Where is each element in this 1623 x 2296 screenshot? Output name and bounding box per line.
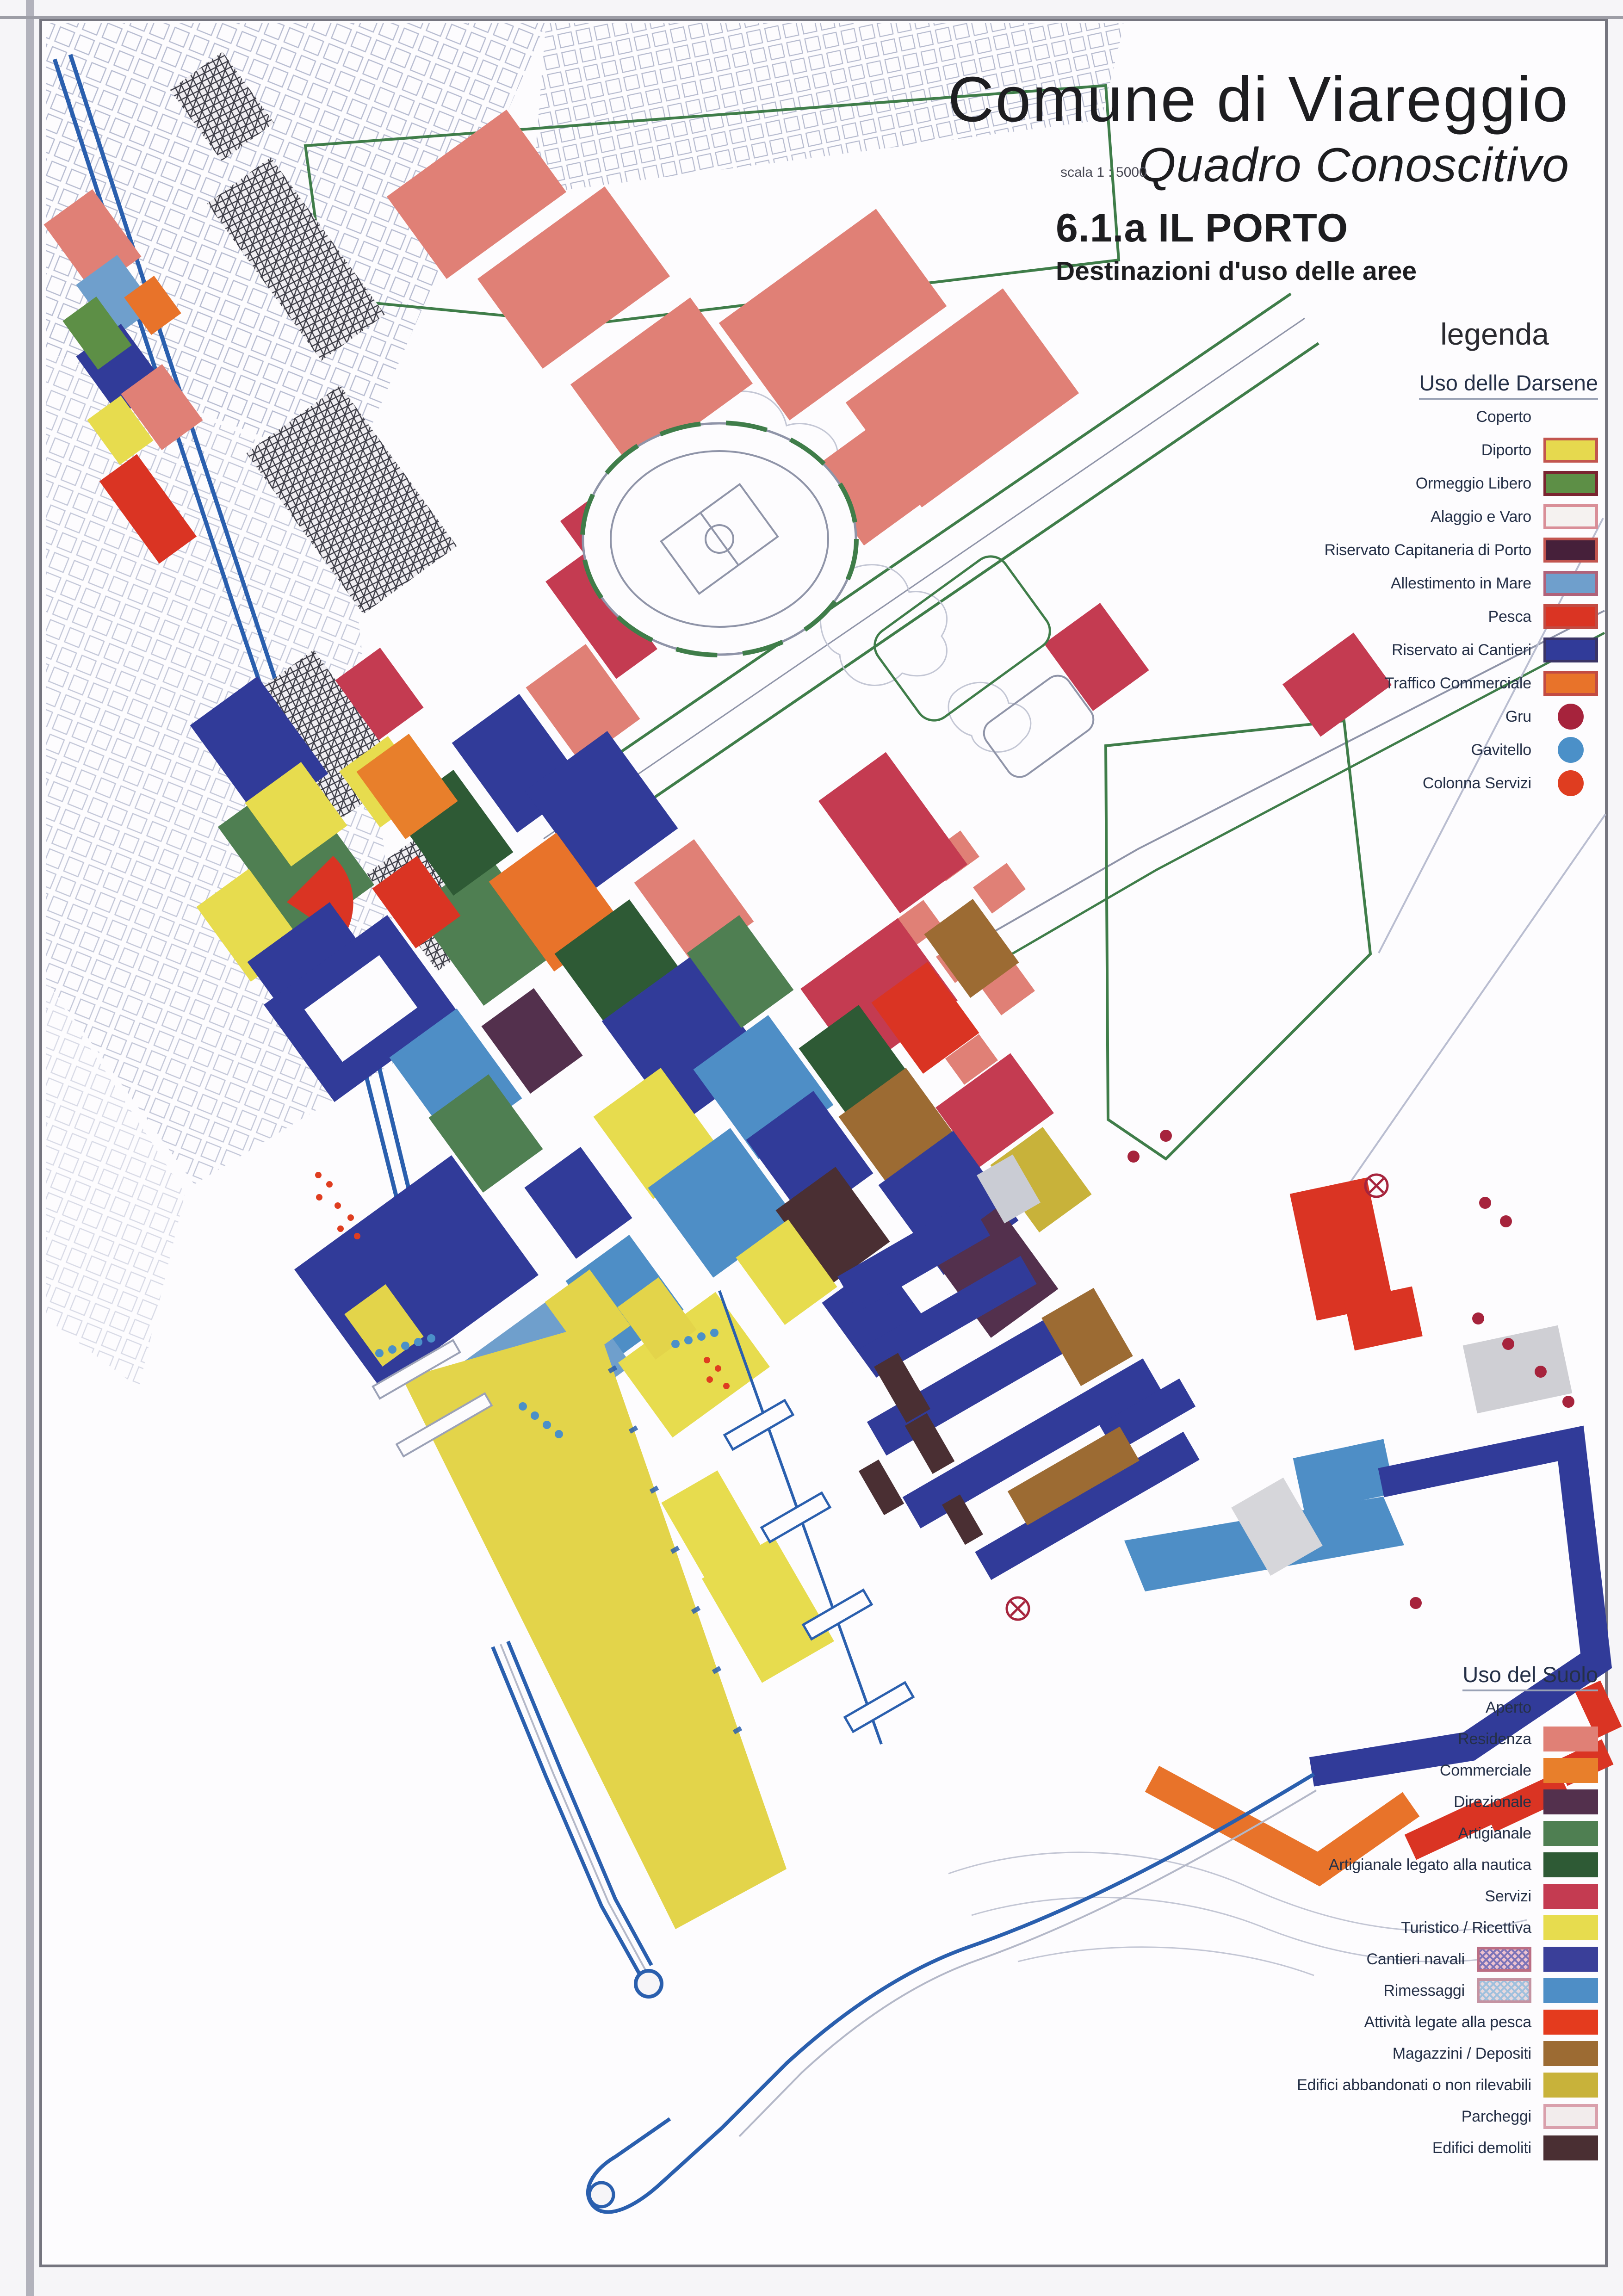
legend-item-label: Gavitello <box>1471 742 1531 758</box>
legend-item-label: Edifici abbandonati o non rilevabili <box>1297 2077 1531 2093</box>
legend-item-label: Riservato Capitaneria di Porto <box>1324 542 1531 558</box>
servizi-swatch <box>1543 1884 1598 1909</box>
edifici-demoliti-swatch <box>1543 2135 1598 2160</box>
allestimento-in-mare-swatch <box>1543 571 1598 596</box>
cantieri-navali-swatch <box>1543 1947 1598 1972</box>
legend-item-riservato-capitaneria: Riservato Capitaneria di Porto <box>904 533 1598 567</box>
legend-item-label: Rimessaggi <box>1383 1983 1465 1999</box>
legend-item-pesca: Pesca <box>904 600 1598 633</box>
legend-heading: legenda <box>1440 316 1549 352</box>
legend-item-ormeggio-libero: Ormeggio Libero <box>904 467 1598 500</box>
legend-item-gru: Gru <box>904 700 1598 733</box>
parcheggi-swatch <box>1543 2104 1598 2129</box>
alaggio-e-varo-swatch <box>1543 504 1598 529</box>
riservato-capitaneria-swatch <box>1543 538 1598 563</box>
legend-item-commerciale: Commerciale <box>904 1755 1598 1786</box>
legend-item-label: Pesca <box>1488 609 1532 625</box>
legend-item-label: Cantieri navali <box>1367 1951 1465 1968</box>
gru-marker-icon <box>1558 704 1584 730</box>
legend-item-diporto: Diporto <box>904 433 1598 467</box>
direzionale-swatch <box>1543 1789 1598 1814</box>
legend-item-gavitello: Gavitello <box>904 733 1598 767</box>
legend-item-alaggio-e-varo: Alaggio e Varo <box>904 500 1598 533</box>
map-code: 6.1.a IL PORTO <box>1056 205 1417 251</box>
attivita-pesca-swatch <box>1543 2010 1598 2035</box>
legend-item-traffico-commerciale: Traffico Commerciale <box>904 667 1598 700</box>
legend-item-label: Traffico Commerciale <box>1385 675 1531 692</box>
legend-darsene-title: Uso delle Darsene <box>904 370 1598 396</box>
legend-item-rimessaggi: Rimessaggi <box>904 1975 1598 2006</box>
legend-item-label: Diporto <box>1481 442 1531 458</box>
legend-item-label: Commerciale <box>1440 1763 1531 1779</box>
legend-item-label: Attività legate alla pesca <box>1364 2014 1531 2030</box>
legend-item-cantieri-navali: Cantieri navali <box>904 1943 1598 1975</box>
map-sheet: Comune di Viareggio Quadro Conoscitivo s… <box>0 0 1623 2296</box>
legend-item-parcheggi: Parcheggi <box>904 2101 1598 2132</box>
ormeggio-libero-swatch <box>1543 471 1598 496</box>
title-block: Comune di Viareggio Quadro Conoscitivo <box>948 68 1569 193</box>
page-subtitle: Quadro Conoscitivo <box>948 138 1569 193</box>
edifici-abbandonati-swatch <box>1543 2073 1598 2098</box>
map-subtitle: Destinazioni d'uso delle aree <box>1056 256 1417 286</box>
legend-item-magazzini-depositi: Magazzini / Depositi <box>904 2038 1598 2069</box>
rimessaggi-swatch <box>1543 1978 1598 2003</box>
legend-item-label: Coperto <box>1476 409 1531 425</box>
legend-item-label: Ormeggio Libero <box>1416 476 1531 492</box>
legend-item-label: Edifici demoliti <box>1432 2140 1531 2156</box>
legend-item-allestimento-in-mare: Allestimento in Mare <box>904 567 1598 600</box>
colonna-servizi-marker-icon <box>1558 770 1584 796</box>
legend-item-label: Magazzini / Depositi <box>1393 2046 1531 2062</box>
legend-item-coperto: Coperto <box>904 400 1598 433</box>
legend-item-label: Direzionale <box>1454 1794 1531 1810</box>
legend-item-label: Artigianale <box>1458 1826 1531 1842</box>
stadium <box>582 423 856 655</box>
legend-item-residenza: Residenza <box>904 1723 1598 1755</box>
map-code-block: 6.1.a IL PORTO Destinazioni d'uso delle … <box>1056 205 1417 286</box>
riservato-ai-cantieri-swatch <box>1543 637 1598 662</box>
legend-item-label: Alaggio e Varo <box>1431 509 1531 525</box>
page-title: Comune di Viareggio <box>948 68 1569 131</box>
legend-item-label: Aperto <box>1486 1700 1531 1716</box>
legend-item-edifici-abbandonati: Edifici abbandonati o non rilevabili <box>904 2069 1598 2101</box>
legend-item-artigianale: Artigianale <box>904 1818 1598 1849</box>
traffico-commerciale-swatch <box>1543 671 1598 696</box>
artigianale-nautica-swatch <box>1543 1852 1598 1877</box>
legend-item-riservato-ai-cantieri: Riservato ai Cantieri <box>904 633 1598 667</box>
legend-item-artigianale-nautica: Artigianale legato alla nautica <box>904 1849 1598 1881</box>
rimessaggi-hatch-swatch <box>1477 1978 1531 2003</box>
legend-item-aperto: Aperto <box>904 1692 1598 1723</box>
legend-item-colonna-servizi: Colonna Servizi <box>904 767 1598 800</box>
magazzini-depositi-swatch <box>1543 2041 1598 2066</box>
legend-item-label: Artigianale legato alla nautica <box>1329 1857 1531 1873</box>
legend-item-label: Allestimento in Mare <box>1391 576 1531 592</box>
legend-item-turistico-ricettiva: Turistico / Ricettiva <box>904 1912 1598 1943</box>
legend-uso-del-suolo: Uso del Suolo Aperto Residenza Commercia… <box>904 1662 1598 2164</box>
cantieri-navali-hatch-swatch <box>1477 1947 1531 1972</box>
legend-item-label: Residenza <box>1458 1731 1531 1747</box>
scale-label: scala 1 : 5000 <box>1060 165 1147 180</box>
gavitello-marker-icon <box>1558 737 1584 763</box>
commerciale-swatch <box>1543 1758 1598 1783</box>
legend-uso-delle-darsene: Uso delle Darsene Coperto Diporto Ormegg… <box>904 370 1598 800</box>
legend-item-servizi: Servizi <box>904 1881 1598 1912</box>
legend-suolo-title: Uso del Suolo <box>904 1662 1598 1687</box>
legend-item-label: Colonna Servizi <box>1423 775 1531 792</box>
legend-item-direzionale: Direzionale <box>904 1786 1598 1818</box>
legend-item-label: Turistico / Ricettiva <box>1401 1920 1531 1936</box>
artigianale-swatch <box>1543 1821 1598 1846</box>
legend-item-label: Gru <box>1505 709 1531 725</box>
turistico-ricettiva-swatch <box>1543 1915 1598 1940</box>
legend-item-edifici-demoliti: Edifici demoliti <box>904 2132 1598 2164</box>
legend-item-label: Servizi <box>1485 1888 1531 1905</box>
pesca-swatch <box>1543 604 1598 629</box>
legend-item-attivita-pesca: Attività legate alla pesca <box>904 2006 1598 2038</box>
legend-item-label: Parcheggi <box>1462 2109 1531 2125</box>
residenza-swatch <box>1543 1727 1598 1751</box>
legend-item-label: Riservato ai Cantieri <box>1392 642 1531 658</box>
diporto-swatch <box>1543 438 1598 463</box>
